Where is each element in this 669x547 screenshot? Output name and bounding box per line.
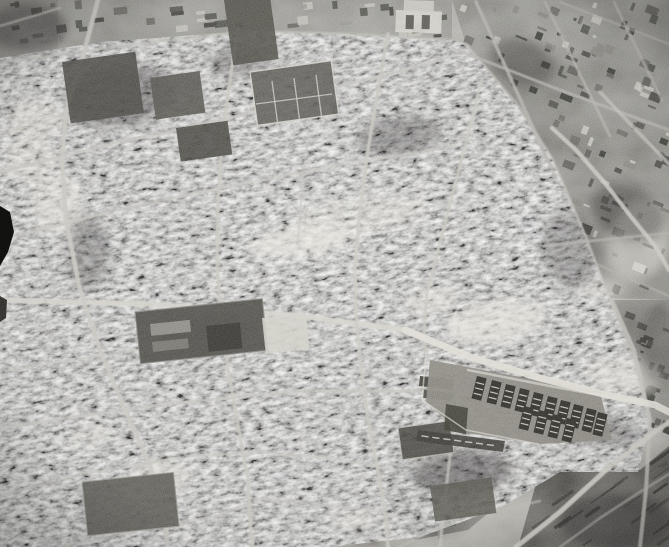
aerial-photo [0, 0, 669, 547]
vignette [0, 0, 669, 547]
aerial-photo-figure [0, 0, 669, 547]
